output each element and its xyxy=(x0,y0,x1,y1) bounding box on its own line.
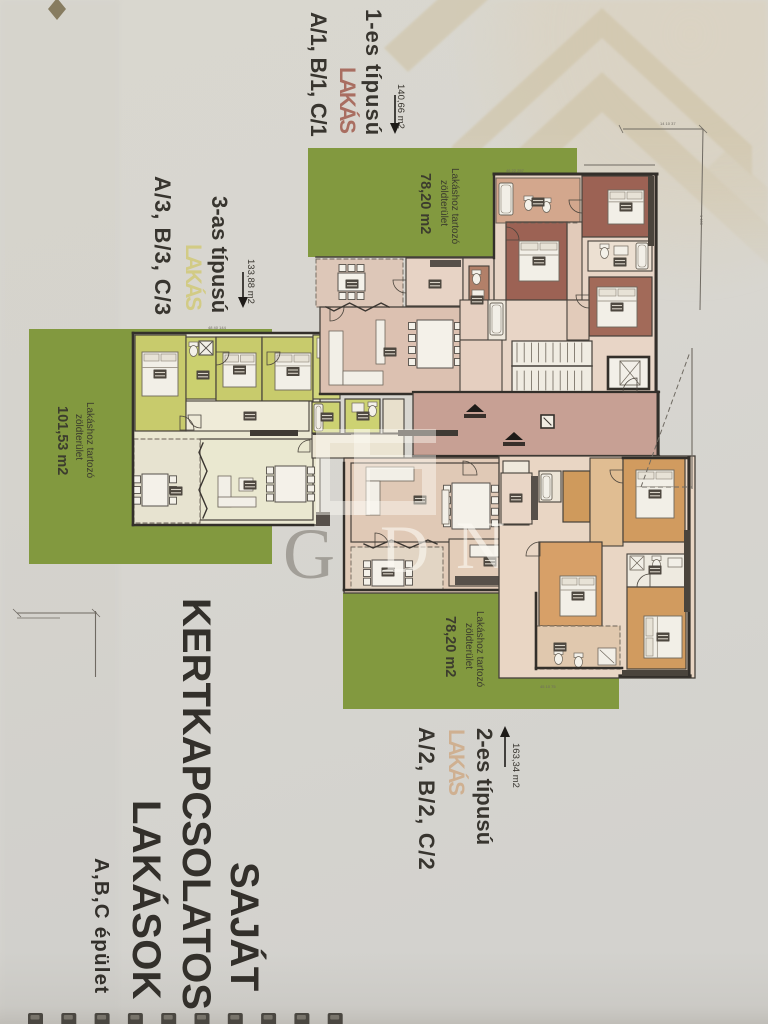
svg-text:A/3, B/3, C/3: A/3, B/3, C/3 xyxy=(150,176,175,316)
svg-text:2-es típusú: 2-es típusú xyxy=(472,728,497,845)
svg-text:140,66 m2: 140,66 m2 xyxy=(395,84,406,129)
svg-text:zöldterület: zöldterület xyxy=(73,414,84,460)
svg-text:45 10 75: 45 10 75 xyxy=(540,684,556,689)
svg-text:78,20 m2: 78,20 m2 xyxy=(442,616,458,677)
svg-text:78,20 m2: 78,20 m2 xyxy=(417,173,433,234)
svg-text:A/1, B/1, C/1: A/1, B/1, C/1 xyxy=(306,12,331,137)
svg-text:A,B,C épület: A,B,C épület xyxy=(90,858,113,994)
svg-text:1 100: 1 100 xyxy=(699,215,704,226)
svg-text:Lakáshoz tartozó: Lakáshoz tartozó xyxy=(474,611,485,688)
svg-text:N: N xyxy=(456,507,505,583)
svg-text:163,34 m2: 163,34 m2 xyxy=(510,743,521,788)
svg-text:KERTKAPCSOLATOS: KERTKAPCSOLATOS xyxy=(174,598,218,1010)
svg-text:SAJÁT: SAJÁT xyxy=(222,862,267,991)
svg-text:A/2, B/2, C/2: A/2, B/2, C/2 xyxy=(414,727,439,871)
svg-text:D: D xyxy=(380,511,429,587)
svg-text:48 40 144: 48 40 144 xyxy=(208,325,227,330)
svg-text:zöldterület: zöldterület xyxy=(438,180,449,226)
svg-text:46 22 257: 46 22 257 xyxy=(506,168,525,173)
svg-text:G: G xyxy=(283,514,335,594)
svg-text:1-es típusú: 1-es típusú xyxy=(361,9,386,136)
svg-text:zöldterület: zöldterület xyxy=(463,623,474,669)
svg-text:LAKÁS: LAKÁS xyxy=(181,244,206,310)
svg-text:Lakáshoz tartozó: Lakáshoz tartozó xyxy=(84,402,95,479)
svg-text:101,53 m2: 101,53 m2 xyxy=(54,406,70,475)
svg-text:14 10 37: 14 10 37 xyxy=(660,121,676,126)
svg-text:LAKÁS: LAKÁS xyxy=(335,67,360,133)
svg-text:Lakáshoz tartozó: Lakáshoz tartozó xyxy=(449,168,460,245)
svg-text:LAKÁSOK: LAKÁSOK xyxy=(124,800,169,1000)
svg-text:LAKÁS: LAKÁS xyxy=(444,729,469,795)
svg-text:3-as típusú: 3-as típusú xyxy=(207,196,232,313)
